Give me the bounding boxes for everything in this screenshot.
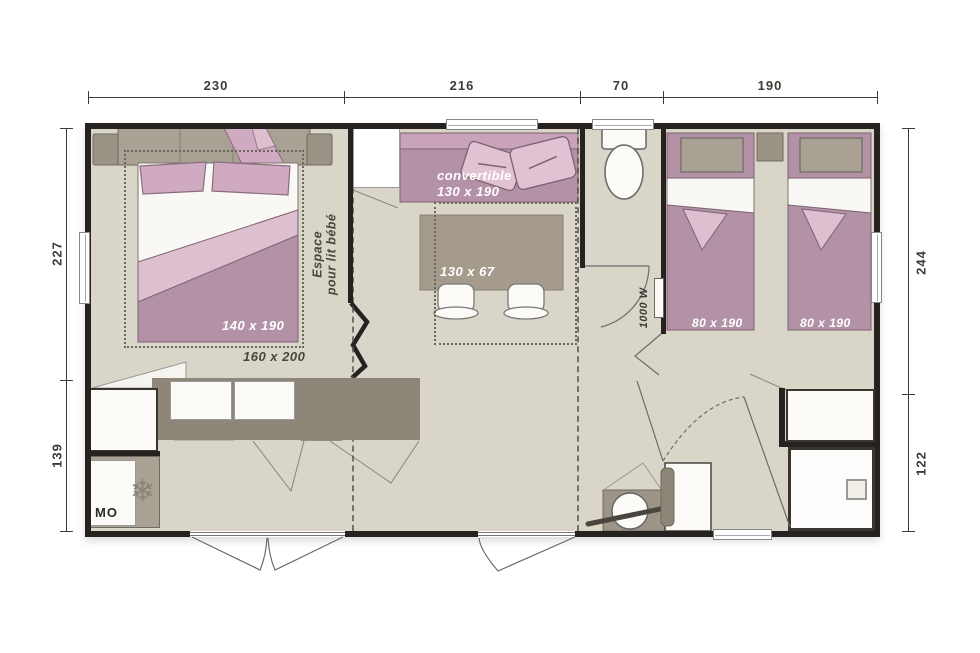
dim-left-227: 227 [50, 234, 65, 274]
twin-bed1-label: 80 x 190 [692, 316, 742, 331]
side-door-leaf [479, 537, 575, 571]
shower-drain [846, 479, 867, 500]
dim-tick [902, 531, 915, 532]
wall-bottom-segment [85, 531, 190, 537]
entrance-door-leaf [268, 537, 343, 570]
snowflake-icon: ❄ [130, 474, 155, 509]
dim-tick [902, 128, 915, 129]
baby-space-line1: Espace [311, 187, 325, 321]
wall-bathroom-vertical [779, 388, 785, 447]
table-label: 130 x 67 [440, 264, 495, 280]
side-door-sill [478, 532, 575, 536]
dim-tick [877, 91, 878, 104]
dim-line-top [88, 97, 878, 98]
wall-bottom-segment [345, 531, 478, 537]
kitchen-cabinet [170, 381, 232, 420]
dim-line-left [66, 128, 67, 532]
dim-top-70: 70 [601, 78, 641, 93]
heater-label: 1000 W [638, 280, 652, 336]
dim-tick [60, 531, 73, 532]
dim-tick [60, 380, 73, 381]
wardrobe [86, 388, 158, 452]
entrance-door-leaf [192, 537, 267, 570]
window-master [79, 232, 90, 304]
entrance-door-sill [190, 532, 345, 536]
dim-line-right [908, 128, 909, 532]
baby-space-line2: pour lit bébé [325, 187, 339, 321]
dim-tick [344, 91, 345, 104]
wall-left [85, 123, 91, 537]
bath-wardrobe [786, 389, 875, 442]
dim-tick [902, 394, 915, 395]
wall-bottom-segment [575, 531, 713, 537]
floorplan-canvas: 140 x 190 160 x 200 Espace pour lit bébé… [0, 0, 980, 653]
dim-right-244: 244 [914, 243, 929, 283]
master-bed-label: 140 x 190 [222, 318, 284, 334]
window-bathroom [713, 529, 772, 540]
partition-master [348, 128, 353, 303]
sofa-label-line2: 130 x 190 [437, 184, 512, 200]
wall-bottom-segment [772, 531, 880, 537]
microwave-label: MO [95, 505, 118, 520]
water-heater [654, 278, 664, 318]
dim-tick [88, 91, 89, 104]
dim-right-122: 122 [914, 444, 929, 484]
baby-space-label: Espace pour lit bébé [311, 187, 340, 321]
kitchen-cabinet [234, 381, 295, 420]
sofa-label-line1: convertible [437, 168, 512, 184]
dim-tick [580, 91, 581, 104]
dim-tick [60, 128, 73, 129]
dim-top-216: 216 [442, 78, 482, 93]
window-wc [592, 119, 654, 130]
master-room-label: 160 x 200 [243, 349, 305, 365]
window-twin [871, 232, 882, 303]
dim-top-230: 230 [196, 78, 236, 93]
wall-wc-left [580, 128, 585, 268]
twin-bed2-label: 80 x 190 [800, 316, 850, 331]
closet [353, 128, 400, 188]
dim-top-190: 190 [750, 78, 790, 93]
module-junction-line [577, 128, 579, 531]
dim-left-139: 139 [50, 436, 65, 476]
sofa-label: convertible 130 x 190 [437, 168, 512, 201]
dim-tick [663, 91, 664, 104]
window-living [446, 119, 538, 130]
